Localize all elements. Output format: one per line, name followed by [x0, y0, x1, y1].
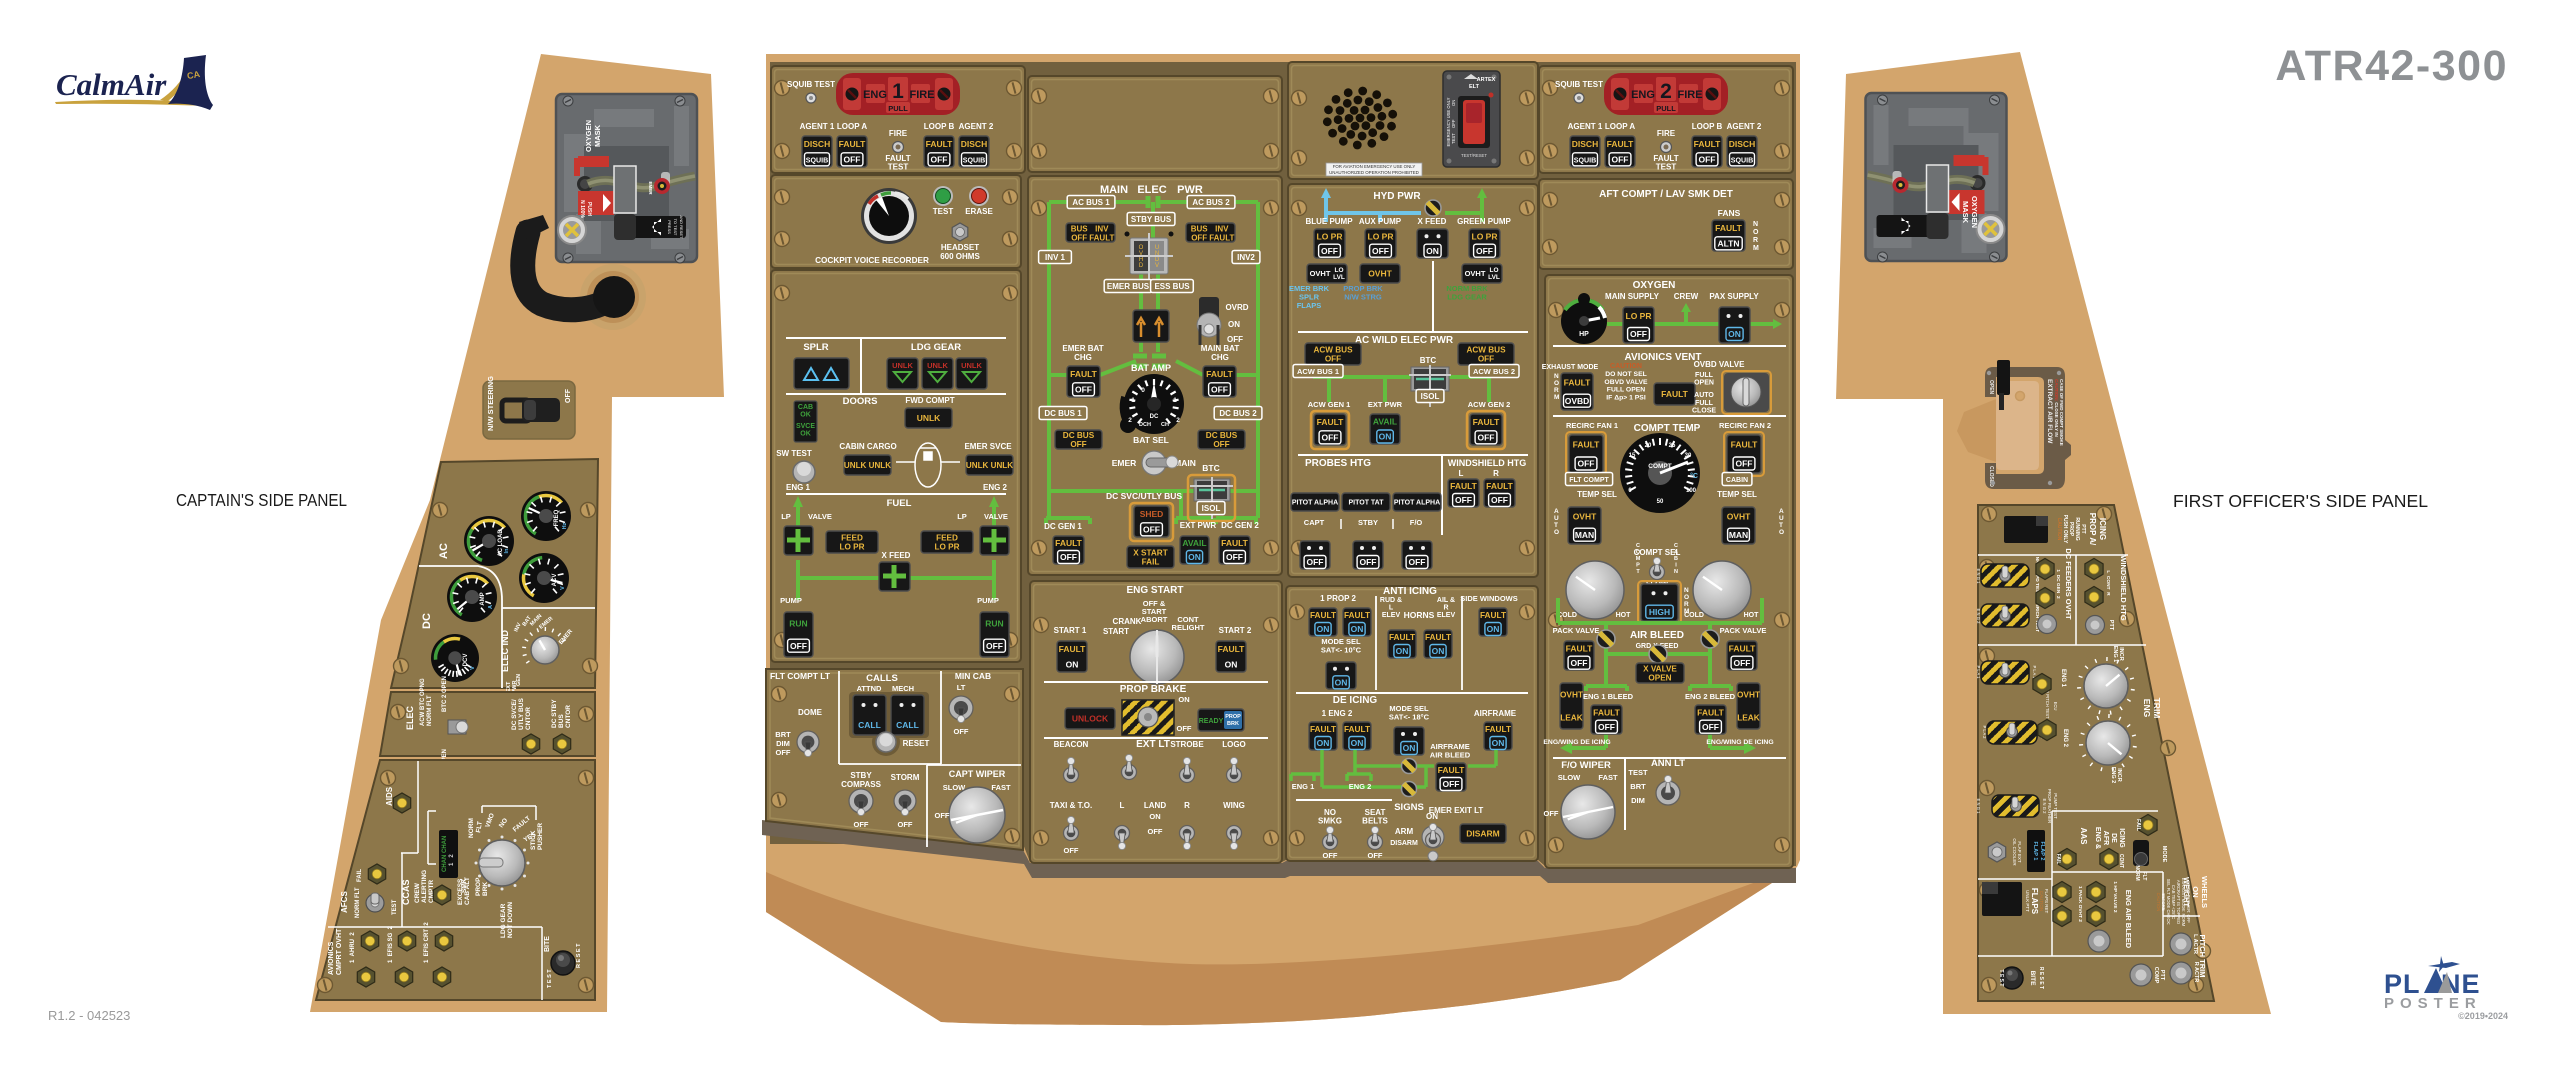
- svg-text:OVRD: OVRD: [1225, 303, 1248, 312]
- svg-text:PUMP: PUMP: [977, 596, 999, 605]
- svg-text:BUS: BUS: [558, 714, 565, 728]
- svg-text:ON: ON: [1426, 246, 1439, 256]
- svg-text:NORM: NORM: [2134, 865, 2140, 880]
- svg-text:UNAUTHORIZED OPERATION PROHIBI: UNAUTHORIZED OPERATION PROHIBITED: [1329, 170, 1419, 175]
- svg-text:1 PACK OVHT 2: 1 PACK OVHT 2: [2077, 886, 2083, 922]
- svg-text:ELEC: ELEC: [405, 705, 415, 730]
- svg-text:TEST/RESET: TEST/RESET: [1461, 153, 1487, 158]
- svg-text:OPEN: OPEN: [1988, 380, 1994, 395]
- svg-text:ATTND: ATTND: [857, 684, 882, 693]
- svg-text:DC FEEDERS OVHT: DC FEEDERS OVHT: [2064, 548, 2073, 620]
- svg-text:CABIN CARGO: CABIN CARGO: [839, 442, 896, 451]
- svg-text:TEST: TEST: [933, 207, 954, 216]
- svg-text:FAULT: FAULT: [1697, 708, 1725, 718]
- svg-text:ON: ON: [1317, 738, 1330, 748]
- svg-text:OVHT: OVHT: [1310, 269, 1331, 278]
- svg-text:ELT: ELT: [1469, 84, 1480, 90]
- svg-text:DISCH: DISCH: [804, 139, 830, 149]
- svg-text:UNLK: UNLK: [927, 361, 948, 370]
- svg-text:ANN LT: ANN LT: [1651, 758, 1685, 769]
- svg-text:RECIRC FAN 1: RECIRC FAN 1: [1566, 421, 1618, 430]
- svg-text:AUX PUMP: AUX PUMP: [1359, 217, 1402, 226]
- svg-text:EXHAUST MODE: EXHAUST MODE: [1542, 364, 1599, 371]
- svg-text:LVL: LVL: [1488, 274, 1500, 281]
- svg-text:INCR: INCR: [2116, 768, 2122, 781]
- svg-text:EXCESS: EXCESS: [457, 878, 464, 905]
- svg-text:ENG AIR BLEED: ENG AIR BLEED: [2124, 890, 2133, 949]
- svg-text:BRK: BRK: [1227, 721, 1239, 727]
- svg-text:T E S T: T E S T: [1998, 970, 2004, 987]
- svg-text:FAULT: FAULT: [1564, 377, 1592, 387]
- svg-text:LP: LP: [781, 512, 791, 521]
- svg-text:OFF: OFF: [1476, 246, 1493, 256]
- svg-text:N: N: [1753, 221, 1758, 228]
- svg-text:OPEN: OPEN: [1694, 380, 1714, 387]
- svg-text:ENG 1 BLEED: ENG 1 BLEED: [1583, 692, 1634, 701]
- svg-text:OFF: OFF: [1191, 234, 1207, 243]
- svg-text:PROP: PROP: [1225, 714, 1241, 720]
- svg-text:DC BUS 2: DC BUS 2: [1219, 409, 1257, 418]
- svg-text:OFF: OFF: [954, 727, 969, 736]
- svg-text:PROBES HTG: PROBES HTG: [1305, 458, 1371, 469]
- svg-text:ELEC IND: ELEC IND: [500, 630, 510, 673]
- svg-text:OFF: OFF: [1578, 459, 1595, 469]
- svg-text:AND RESET: AND RESET: [679, 216, 684, 239]
- svg-text:FIRE: FIRE: [1657, 129, 1676, 138]
- svg-text:30: 30: [1685, 453, 1692, 459]
- svg-text:ISOL: ISOL: [1421, 392, 1440, 401]
- svg-text:1: 1: [1131, 397, 1135, 404]
- svg-text:AIR BLEED: AIR BLEED: [1430, 751, 1471, 760]
- svg-text:DCH: DCH: [1139, 422, 1151, 428]
- svg-text:SQUIB: SQUIB: [806, 156, 828, 164]
- svg-text:OFF: OFF: [1213, 440, 1229, 449]
- svg-text:ARM: ARM: [1395, 827, 1414, 836]
- svg-text:ENG 2: ENG 2: [1349, 782, 1372, 791]
- svg-text:X FEED: X FEED: [1418, 217, 1447, 226]
- svg-text:STICK PUSHER: OFF: STICK PUSHER: OFF: [2186, 881, 2191, 923]
- svg-text:R ACTR: R ACTR: [2193, 962, 2199, 983]
- svg-text:FLT COMPT LT: FLT COMPT LT: [770, 671, 831, 681]
- svg-text:FAULT: FAULT: [1425, 632, 1451, 642]
- svg-text:ON: ON: [1432, 646, 1445, 656]
- svg-text:OFF: OFF: [1227, 335, 1243, 344]
- svg-text:FWD COMPT: FWD COMPT: [905, 396, 954, 405]
- svg-text:DC GEN 2: DC GEN 2: [1221, 521, 1259, 530]
- svg-text:BITE: BITE: [2029, 971, 2036, 986]
- svg-text:N/W STRG: N/W STRG: [1344, 293, 1382, 302]
- svg-text:EMER SVCE: EMER SVCE: [964, 442, 1012, 451]
- svg-text:TEMP SEL: TEMP SEL: [1717, 490, 1757, 499]
- svg-text:LDG GEAR: LDG GEAR: [1447, 293, 1487, 302]
- svg-text:SIDE WINDOWS: SIDE WINDOWS: [1460, 594, 1518, 603]
- svg-text:BLUE PUMP: BLUE PUMP: [1305, 217, 1353, 226]
- svg-text:FULL OPEN: FULL OPEN: [1607, 387, 1645, 394]
- svg-text:ICING: ICING: [2118, 828, 2125, 848]
- svg-text:ACW BUS 1: ACW BUS 1: [1297, 367, 1339, 376]
- svg-text:SQUIB: SQUIB: [1731, 156, 1753, 164]
- svg-text:FAULT: FAULT: [1607, 139, 1635, 149]
- svg-text:AIL &: AIL &: [1437, 597, 1455, 604]
- svg-text:FULL: FULL: [1695, 372, 1714, 379]
- svg-text:COMP: COMP: [2153, 967, 2159, 984]
- svg-text:OFF: OFF: [1143, 525, 1160, 535]
- svg-text:MAN: MAN: [1729, 530, 1748, 540]
- svg-text:MIN CAB: MIN CAB: [955, 671, 991, 681]
- svg-text:E N G 1: E N G 1: [1976, 569, 1981, 585]
- svg-text:ENG 1: ENG 1: [786, 483, 811, 492]
- svg-text:SQUIB TEST: SQUIB TEST: [1555, 80, 1603, 89]
- svg-text:EXTRACT AIR FLOW: EXTRACT AIR FLOW: [2046, 379, 2053, 444]
- svg-text:OFF: OFF: [1075, 384, 1092, 394]
- svg-text:OVHT: OVHT: [1465, 269, 1486, 278]
- svg-text:DIM: DIM: [1631, 796, 1645, 805]
- svg-text:FLT COMPT: FLT COMPT: [1569, 477, 1609, 484]
- svg-text:OFF: OFF: [1064, 846, 1079, 855]
- svg-text:FAULT: FAULT: [1731, 440, 1759, 450]
- svg-text:CCAS: CCAS: [401, 879, 411, 905]
- svg-text:INCR: INCR: [2118, 647, 2124, 660]
- svg-text:OFF: OFF: [1325, 355, 1341, 364]
- svg-text:OFF: OFF: [1544, 809, 1559, 818]
- svg-text:STROBE: STROBE: [1170, 740, 1204, 749]
- svg-text:WINDSHIELD HTG: WINDSHIELD HTG: [2119, 555, 2128, 621]
- svg-text:FAULT: FAULT: [1566, 644, 1594, 654]
- svg-text:50: 50: [1657, 499, 1664, 505]
- svg-text:WING: WING: [1223, 801, 1245, 810]
- svg-text:FAULT: FAULT: [1209, 234, 1234, 243]
- svg-text:T E S T: T E S T: [547, 969, 553, 988]
- svg-text:O: O: [1554, 380, 1559, 387]
- svg-text:FANS: FANS: [1718, 208, 1741, 218]
- svg-text:TEST: TEST: [1656, 163, 1677, 172]
- svg-text:IF Δp> 1 PSI: IF Δp> 1 PSI: [1606, 394, 1646, 401]
- svg-text:AUTO: AUTO: [1694, 392, 1714, 399]
- svg-text:CREW: CREW: [414, 882, 421, 903]
- svg-text:FAIL: FAIL: [2135, 819, 2141, 832]
- svg-text:BRK: BRK: [482, 882, 489, 896]
- svg-text:FAULT: FAULT: [1729, 644, 1757, 654]
- svg-text:100: 100: [1686, 488, 1697, 494]
- svg-text:PULL: PULL: [888, 104, 908, 113]
- svg-text:E N G 1: E N G 1: [1976, 799, 1981, 815]
- svg-text:OIL COOLER: OIL COOLER: [2012, 838, 2017, 866]
- svg-text:DIM: DIM: [776, 739, 790, 748]
- svg-text:ENG 1: ENG 1: [1292, 782, 1315, 791]
- svg-text:DC GEN 1: DC GEN 1: [1044, 522, 1082, 531]
- svg-text:ON: ON: [1487, 624, 1500, 634]
- svg-text:FUEL: FUEL: [887, 498, 912, 509]
- svg-text:ACW GEN 1: ACW GEN 1: [1308, 400, 1351, 409]
- svg-text:DC: DC: [1150, 414, 1159, 420]
- svg-text:FLAPS RET: FLAPS RET: [2044, 889, 2049, 914]
- svg-text:MAIN SUPPLY: MAIN SUPPLY: [1605, 292, 1660, 301]
- svg-text:FLAPS: FLAPS: [2030, 888, 2039, 915]
- svg-text:OFF: OFF: [1736, 459, 1753, 469]
- svg-text:ON: ON: [1317, 624, 1330, 634]
- svg-text:OFF: OFF: [1321, 246, 1338, 256]
- svg-text:FAULT: FAULT: [1310, 610, 1336, 620]
- svg-text:PWR: PWR: [1177, 184, 1203, 196]
- svg-text:1 EFIS SG 2: 1 EFIS SG 2: [388, 925, 394, 963]
- svg-text:EMER: EMER: [648, 181, 653, 195]
- svg-text:0: 0: [1141, 387, 1145, 394]
- svg-text:AIDS: AIDS: [385, 786, 394, 806]
- svg-text:M: M: [1554, 394, 1559, 401]
- svg-text:F/O: F/O: [1410, 518, 1423, 527]
- svg-text:ATR42-300: ATR42-300: [2275, 42, 2508, 90]
- svg-text:CAUTION: CAUTION: [2056, 518, 2062, 541]
- svg-text:OFF: OFF: [1443, 779, 1460, 789]
- svg-text:AMP: AMP: [480, 592, 486, 605]
- svg-text:1: 1: [892, 80, 904, 103]
- svg-text:LO: LO: [1334, 267, 1343, 274]
- svg-text:COMPASS: COMPASS: [841, 780, 882, 789]
- svg-text:OFF: OFF: [898, 820, 913, 829]
- svg-text:MAIN: MAIN: [1100, 184, 1128, 196]
- svg-text:BELTS: BELTS: [1362, 817, 1388, 826]
- svg-text:FAST: FAST: [1598, 773, 1618, 782]
- svg-text:LDG GEAR: LDG GEAR: [500, 903, 507, 938]
- svg-text:ON: ON: [1492, 738, 1505, 748]
- svg-text:POSTER: POSTER: [2384, 995, 2482, 1012]
- svg-text:C: C: [1636, 543, 1640, 549]
- svg-text:LO: LO: [1489, 267, 1498, 274]
- svg-text:OFF: OFF: [1478, 355, 1494, 364]
- svg-text:TRIM: TRIM: [2152, 698, 2162, 719]
- svg-text:ERASE: ERASE: [965, 207, 993, 216]
- svg-text:PITOT ALPHA: PITOT ALPHA: [1292, 500, 1338, 507]
- svg-text:LO PR: LO PR: [1368, 231, 1394, 241]
- svg-text:ISOL: ISOL: [1202, 504, 1221, 513]
- svg-text:CAUTION: CAUTION: [2039, 891, 2044, 911]
- svg-text:BTC 2 OPEN: BTC 2 OPEN: [442, 676, 448, 712]
- svg-text:F/O WIPER: F/O WIPER: [1561, 760, 1611, 771]
- svg-text:B: B: [1674, 556, 1678, 562]
- svg-text:COCKPIT VOICE RECORDER: COCKPIT VOICE RECORDER: [815, 256, 929, 265]
- svg-text:FREQ: FREQ: [554, 509, 560, 526]
- svg-text:FAULT: FAULT: [1310, 724, 1336, 734]
- svg-text:OFF: OFF: [931, 154, 948, 164]
- svg-text:FAULT: FAULT: [839, 139, 867, 149]
- svg-text:FEED: FEED: [841, 534, 863, 543]
- svg-text:OK: OK: [800, 412, 811, 419]
- svg-text:MECH: MECH: [892, 684, 914, 693]
- svg-text:ON: ON: [1351, 738, 1364, 748]
- svg-text:SIGNS: SIGNS: [1394, 802, 1424, 813]
- svg-text:DISARM: DISARM: [1390, 840, 1418, 847]
- svg-text:BRT: BRT: [1630, 782, 1646, 791]
- svg-text:FLAP EXT: FLAP EXT: [2017, 841, 2022, 862]
- svg-text:PAX SUPPLY: PAX SUPPLY: [1709, 292, 1759, 301]
- svg-text:ON: ON: [1225, 660, 1238, 670]
- svg-text:DISCH: DISCH: [961, 139, 987, 149]
- svg-text:U: U: [1554, 515, 1559, 522]
- svg-text:ACW BTC OPNG: ACW BTC OPNG: [420, 678, 426, 726]
- svg-text:FAULT: FAULT: [1055, 538, 1083, 548]
- svg-text:OFF: OFF: [1478, 432, 1495, 442]
- svg-text:ON: ON: [1728, 329, 1741, 339]
- svg-text:EXT PWR: EXT PWR: [1180, 521, 1217, 530]
- svg-text:FAIL: FAIL: [1142, 558, 1160, 567]
- svg-text:CNTOR: CNTOR: [565, 705, 572, 728]
- svg-text:RELIGHT: RELIGHT: [1172, 623, 1205, 632]
- svg-text:FAULT: FAULT: [1070, 369, 1098, 379]
- svg-text:ENG/WING DE ICING: ENG/WING DE ICING: [1706, 739, 1773, 746]
- svg-text:2: 2: [1660, 80, 1672, 103]
- svg-text:PROP: PROP: [2068, 522, 2074, 537]
- svg-text:ENG START: ENG START: [1126, 585, 1183, 596]
- svg-text:ENG/WING DE ICING: ENG/WING DE ICING: [1543, 739, 1610, 746]
- svg-text:CAB ALT: CAB ALT: [464, 877, 471, 905]
- svg-text:BITE: BITE: [544, 936, 551, 952]
- svg-text:OFF: OFF: [1060, 552, 1077, 562]
- svg-text:CONT: CONT: [2118, 854, 2124, 868]
- svg-text:LEAK: LEAK: [1560, 713, 1583, 723]
- svg-text:DCV: DCV: [463, 654, 469, 667]
- svg-text:OFF: OFF: [1148, 827, 1163, 836]
- svg-text:INV: INV: [1215, 225, 1229, 234]
- svg-text:SLOW: SLOW: [1558, 773, 1581, 782]
- svg-text:PULL: PULL: [1656, 104, 1676, 113]
- svg-text:OFF: OFF: [1307, 557, 1324, 567]
- svg-text:OBVD VALVE: OBVD VALVE: [1604, 379, 1648, 386]
- svg-text:OFF: OFF: [1571, 658, 1588, 668]
- svg-text:UNLOCK: UNLOCK: [1072, 714, 1109, 724]
- svg-text:PITOT TAT: PITOT TAT: [1349, 500, 1385, 507]
- svg-text:ON: ON: [2191, 886, 2200, 897]
- svg-text:CASE OF FWD COMPT SMOKE: CASE OF FWD COMPT SMOKE: [2059, 379, 2064, 446]
- svg-text:OVHT: OVHT: [1368, 269, 1392, 279]
- svg-text:OFF: OFF: [565, 388, 572, 403]
- svg-text:FAIL: FAIL: [357, 869, 363, 882]
- svg-text:ON: ON: [1066, 660, 1079, 670]
- svg-text:BUS: BUS: [1071, 225, 1089, 234]
- svg-text:1 ENG 2: 1 ENG 2: [1322, 709, 1353, 718]
- svg-text:BAT AMP: BAT AMP: [1131, 363, 1171, 373]
- svg-text:OFF: OFF: [1612, 154, 1629, 164]
- svg-text:NORM FLT: NORM FLT: [427, 695, 433, 726]
- svg-text:ENG 1: ENG 1: [2060, 669, 2066, 688]
- svg-text:FAULT: FAULT: [1344, 724, 1370, 734]
- svg-text:DISCH: DISCH: [1572, 139, 1598, 149]
- svg-text:N 100%: N 100%: [579, 200, 585, 218]
- svg-text:M: M: [1753, 245, 1759, 252]
- svg-text:OK: OK: [800, 431, 811, 438]
- svg-text:PROP: PROP: [475, 877, 482, 896]
- svg-text:MAIN BAT: MAIN BAT: [1201, 344, 1240, 353]
- svg-text:OVHT: OVHT: [1727, 512, 1751, 522]
- svg-text:VALVE: VALVE: [984, 512, 1008, 521]
- svg-text:FAIL: FAIL: [2055, 854, 2061, 865]
- svg-text:COMPT TEMP: COMPT TEMP: [1634, 423, 1701, 434]
- svg-text:CALL: CALL: [858, 720, 881, 730]
- svg-text:OFF: OFF: [935, 811, 950, 820]
- svg-text:STORM: STORM: [891, 773, 920, 782]
- svg-text:START: START: [1103, 627, 1129, 636]
- svg-text:2: 2: [1128, 417, 1132, 424]
- svg-text:LOOP A: LOOP A: [837, 122, 867, 131]
- svg-text:1: 1: [1173, 397, 1177, 404]
- svg-text:FAULT: FAULT: [1389, 632, 1415, 642]
- svg-text:L ACTR: L ACTR: [2192, 934, 2198, 954]
- svg-text:OFF: OFF: [1734, 658, 1751, 668]
- svg-text:CAB TEMP <25°C: CAB TEMP <25°C: [2171, 885, 2176, 919]
- svg-text:LEAK: LEAK: [1737, 713, 1760, 723]
- svg-text:TEST: TEST: [1628, 768, 1648, 777]
- svg-text:V: V: [560, 586, 566, 590]
- svg-text:1 HP VALVE 2: 1 HP VALVE 2: [2112, 881, 2118, 913]
- svg-text:SEL FLT MODE CHECK:: SEL FLT MODE CHECK:: [2166, 879, 2171, 926]
- svg-text:DC STBY: DC STBY: [551, 699, 558, 728]
- svg-text:1 EFIS CRT 2: 1 EFIS CRT 2: [424, 922, 430, 963]
- svg-text:INV: INV: [1095, 225, 1109, 234]
- svg-text:SVCE: SVCE: [796, 423, 815, 430]
- svg-text:OFF: OFF: [1322, 432, 1339, 442]
- svg-text:O: O: [1636, 550, 1641, 556]
- svg-text:CHAN CHAN: CHAN CHAN: [442, 836, 448, 872]
- svg-text:EMER BAT: EMER BAT: [1062, 344, 1103, 353]
- svg-text:LP: LP: [957, 512, 967, 521]
- svg-text:UNLK: UNLK: [892, 361, 913, 370]
- svg-text:EXHAUST MODE: NORM: EXHAUST MODE: NORM: [2181, 878, 2186, 927]
- svg-text:LO PR: LO PR: [934, 543, 959, 552]
- svg-text:BRT: BRT: [775, 730, 791, 739]
- svg-text:O: O: [1684, 594, 1689, 601]
- svg-text:A: A: [1779, 508, 1784, 515]
- svg-text:AC WILD ELEC PWR: AC WILD ELEC PWR: [1355, 335, 1454, 346]
- svg-text:P L A 1: P L A 1: [1976, 665, 1981, 679]
- svg-text:ACW BUS: ACW BUS: [1313, 346, 1353, 355]
- svg-text:SAT<- 10°C: SAT<- 10°C: [1321, 646, 1362, 655]
- svg-text:EXT LT: EXT LT: [1136, 739, 1170, 750]
- svg-text:SQUIB TEST: SQUIB TEST: [787, 80, 835, 89]
- svg-text:TEST: TEST: [392, 899, 398, 915]
- svg-text:FLAP 1: FLAP 1: [2032, 842, 2038, 861]
- svg-text:FAULT: FAULT: [1344, 610, 1370, 620]
- svg-text:OFF: OFF: [1598, 722, 1615, 732]
- svg-text:FULL: FULL: [1695, 400, 1714, 407]
- svg-text:STICK: STICK: [530, 830, 537, 850]
- svg-text:D: D: [1139, 263, 1144, 269]
- svg-text:FAULT: FAULT: [1573, 440, 1601, 450]
- svg-text:EMER EXIT LT: EMER EXIT LT: [1429, 806, 1484, 815]
- svg-text:ON: ON: [1178, 695, 1189, 704]
- svg-text:R: R: [1753, 237, 1758, 244]
- svg-text:O: O: [1779, 529, 1784, 536]
- svg-text:PUSH: PUSH: [586, 202, 592, 216]
- svg-text:ON: ON: [1335, 678, 1348, 688]
- svg-text:FAULT: FAULT: [1450, 481, 1478, 491]
- svg-text:CH: CH: [1161, 422, 1169, 428]
- svg-text:LOOP A: LOOP A: [1605, 122, 1635, 131]
- svg-text:ACW BUS 2: ACW BUS 2: [1473, 367, 1515, 376]
- svg-text:GREEN PUMP: GREEN PUMP: [1457, 217, 1511, 226]
- svg-text:FEED: FEED: [936, 534, 958, 543]
- svg-text:FAULT: FAULT: [1715, 223, 1743, 233]
- svg-text:FAST: FAST: [991, 783, 1011, 792]
- svg-text:HIGH: HIGH: [1649, 607, 1670, 617]
- svg-text:FAULT: FAULT: [1661, 389, 1689, 399]
- svg-text:SAT<- 18°C: SAT<- 18°C: [1389, 713, 1430, 722]
- svg-text:TEMP SEL: TEMP SEL: [1577, 490, 1617, 499]
- svg-text:ln: ln: [504, 548, 510, 554]
- svg-text:START 1: START 1: [1054, 626, 1087, 635]
- svg-text:CMPRT OVHT: CMPRT OVHT: [336, 928, 343, 975]
- svg-text:U: U: [1779, 515, 1784, 522]
- svg-text:CAUTION: CAUTION: [1610, 363, 1642, 370]
- svg-text:STBY: STBY: [850, 771, 872, 780]
